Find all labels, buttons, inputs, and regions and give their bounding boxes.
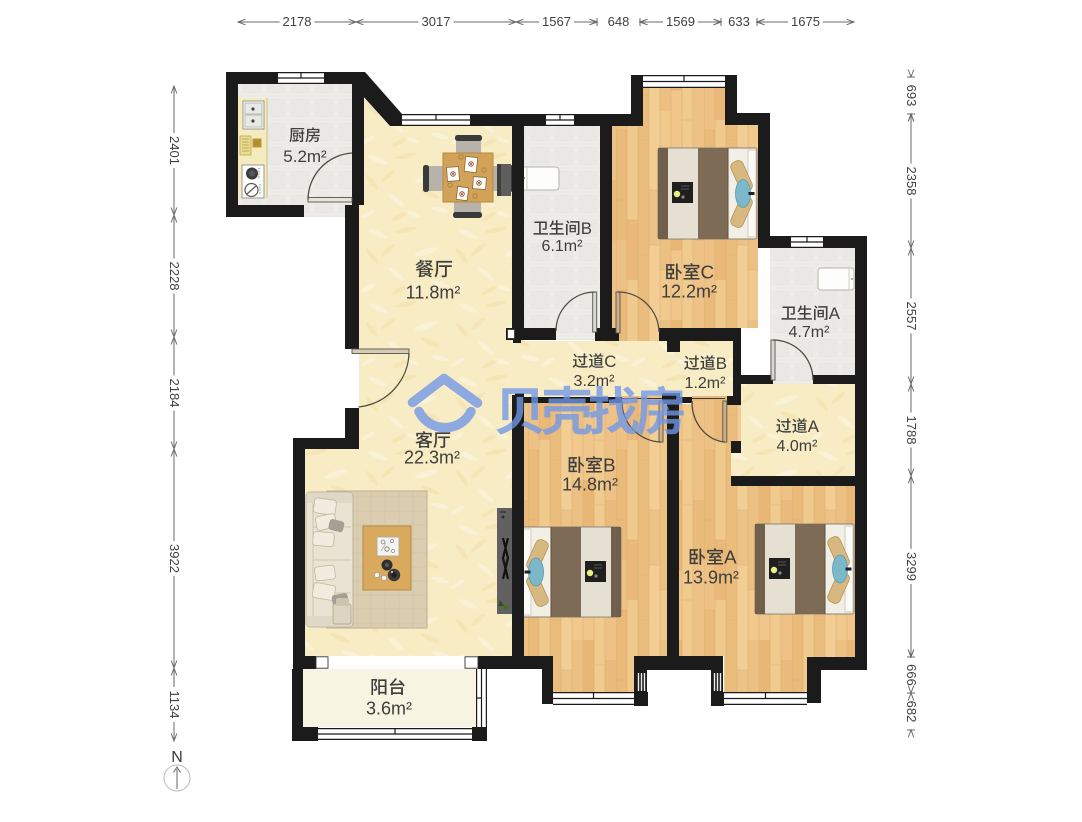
svg-text:3299: 3299 [904, 552, 919, 581]
svg-text:3.2m²: 3.2m² [574, 373, 616, 390]
svg-text:2184: 2184 [167, 379, 182, 408]
svg-text:633: 633 [728, 14, 750, 29]
svg-text:B: B [603, 456, 616, 477]
svg-text:3.6m²: 3.6m² [366, 699, 412, 719]
svg-text:1.2m²: 1.2m² [685, 375, 727, 392]
svg-text:682: 682 [904, 701, 919, 723]
svg-text:2178: 2178 [283, 14, 312, 29]
svg-text:648: 648 [608, 14, 630, 29]
svg-text:1675: 1675 [791, 14, 820, 29]
svg-text:2557: 2557 [904, 302, 919, 331]
svg-text:4.7m²: 4.7m² [789, 324, 831, 341]
svg-text:B: B [581, 219, 592, 238]
svg-text:A: A [724, 548, 737, 569]
svg-text:1567: 1567 [542, 14, 571, 29]
svg-text:22.3m²: 22.3m² [404, 448, 460, 468]
svg-text:1134: 1134 [167, 691, 182, 719]
svg-text:13.9m²: 13.9m² [683, 568, 739, 588]
svg-text:2358: 2358 [904, 167, 919, 196]
svg-text:N: N [171, 749, 183, 766]
svg-text:2228: 2228 [167, 262, 182, 291]
svg-text:C: C [604, 352, 616, 371]
svg-text:12.2m²: 12.2m² [661, 282, 717, 302]
svg-text:A: A [808, 417, 820, 436]
svg-text:A: A [829, 304, 841, 323]
svg-text:3922: 3922 [167, 544, 182, 573]
svg-text:C: C [701, 263, 715, 284]
svg-text:11.8m²: 11.8m² [406, 283, 461, 303]
svg-text:6.1m²: 6.1m² [542, 238, 584, 255]
svg-text:14.8m²: 14.8m² [562, 475, 618, 495]
svg-text:3017: 3017 [422, 14, 451, 29]
svg-text:693: 693 [904, 85, 919, 107]
svg-text:5.2m²: 5.2m² [283, 147, 327, 166]
svg-text:666: 666 [904, 664, 919, 686]
svg-text:1788: 1788 [904, 416, 919, 445]
svg-text:2401: 2401 [167, 136, 182, 165]
svg-text:4.0m²: 4.0m² [777, 438, 819, 455]
svg-text:B: B [716, 354, 727, 373]
svg-text:1569: 1569 [666, 14, 695, 29]
